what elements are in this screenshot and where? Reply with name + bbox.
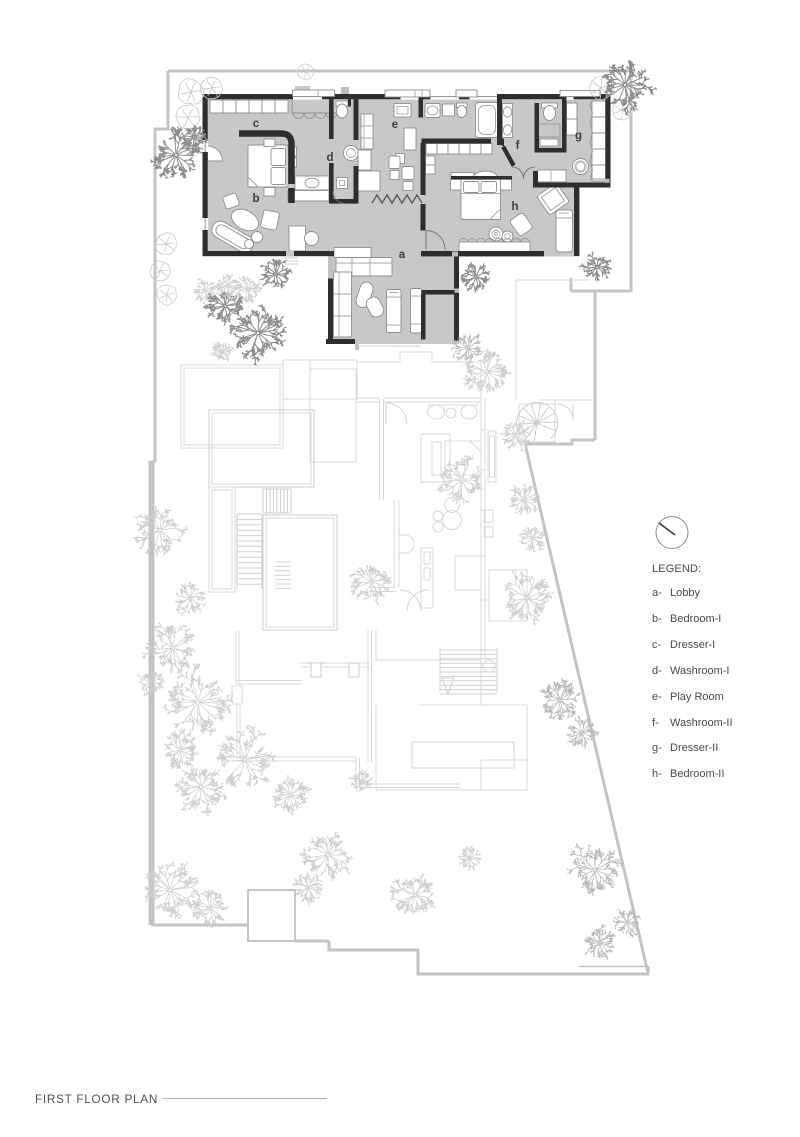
svg-text:a: a [399,249,406,261]
svg-text:Dresser-I: Dresser-I [670,639,715,651]
svg-text:e: e [392,119,398,131]
svg-text:Play Room: Play Room [670,691,724,703]
svg-text:e-: e- [652,691,662,703]
svg-text:Bedroom-II: Bedroom-II [670,768,724,780]
svg-text:d: d [326,152,333,164]
svg-text:Bedroom-I: Bedroom-I [670,613,721,625]
svg-text:f-: f- [652,717,659,729]
svg-text:Lobby: Lobby [670,587,700,599]
svg-text:c-: c- [652,639,662,651]
svg-text:g: g [575,130,582,142]
svg-text:Washroom-I: Washroom-I [670,665,730,677]
svg-text:c: c [253,118,260,130]
svg-text:FIRST FLOOR PLAN: FIRST FLOOR PLAN [35,1092,158,1106]
svg-text:Dresser-II: Dresser-II [670,742,718,754]
svg-text:Washroom-II: Washroom-II [670,717,733,729]
svg-text:b: b [252,193,259,205]
svg-text:h-: h- [652,768,662,780]
svg-text:b-: b- [652,613,662,625]
svg-text:f: f [516,140,520,152]
svg-text:d-: d- [652,665,662,677]
svg-text:h: h [511,201,518,213]
svg-text:g-: g- [652,742,662,754]
svg-text:LEGEND:: LEGEND: [652,563,701,575]
svg-text:a-: a- [652,587,662,599]
